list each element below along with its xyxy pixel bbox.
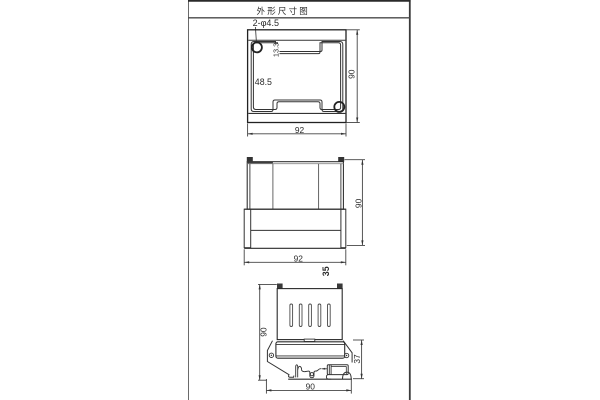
svg-text:92: 92 [294,254,304,264]
svg-text:13.3: 13.3 [271,43,280,57]
svg-text:35: 35 [321,266,331,276]
svg-text:90: 90 [346,69,356,79]
svg-text:90: 90 [259,327,269,337]
svg-text:48.5: 48.5 [255,77,272,87]
svg-text:90: 90 [306,381,316,391]
svg-text:外形尺寸图: 外形尺寸图 [257,6,311,16]
svg-text:92: 92 [295,125,305,135]
svg-text:2-φ4.5: 2-φ4.5 [253,18,279,28]
svg-text:37: 37 [352,354,362,364]
svg-text:90: 90 [353,198,363,208]
